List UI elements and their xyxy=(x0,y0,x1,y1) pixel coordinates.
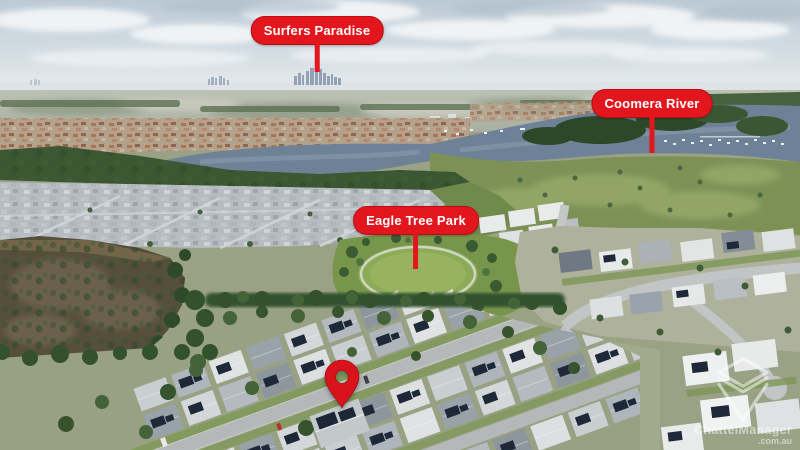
label-coomera-river: Coomera River xyxy=(591,89,712,153)
aerial-photo: Surfers Paradise Coomera River Eagle Tre… xyxy=(0,0,800,450)
label-pill: Coomera River xyxy=(591,89,712,118)
label-pointer-line xyxy=(414,234,419,269)
watermark: ChattelManager .com.au xyxy=(694,354,792,447)
label-text: Eagle Tree Park xyxy=(366,213,466,228)
location-pin-icon xyxy=(324,359,360,409)
label-pill: Surfers Paradise xyxy=(251,16,384,45)
label-pointer-line xyxy=(650,117,655,153)
watermark-brand: ChattelManager xyxy=(694,424,792,437)
label-eagle-tree-park: Eagle Tree Park xyxy=(353,206,479,269)
label-text: Coomera River xyxy=(604,96,699,111)
label-surfers-paradise: Surfers Paradise xyxy=(251,16,384,72)
label-text: Surfers Paradise xyxy=(264,23,371,38)
label-pill: Eagle Tree Park xyxy=(353,206,479,235)
label-pointer-line xyxy=(314,44,319,72)
gem-logo-icon xyxy=(713,354,773,424)
watermark-domain: .com.au xyxy=(694,437,792,446)
